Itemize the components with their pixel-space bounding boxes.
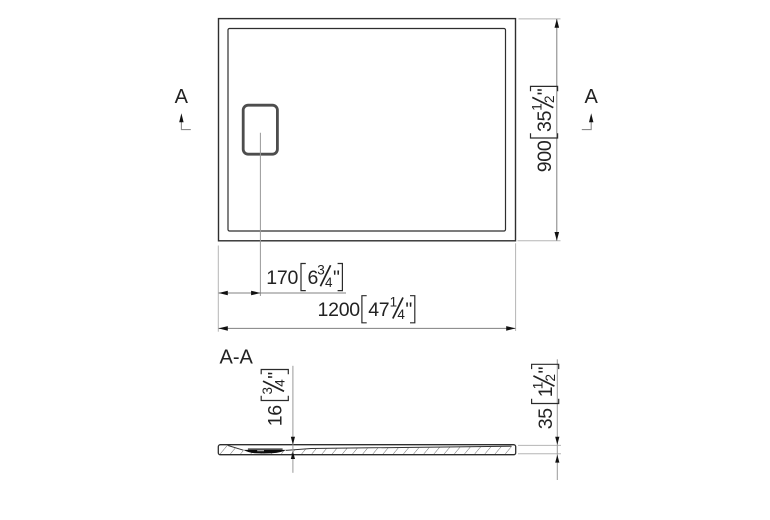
svg-text:4: 4 <box>273 379 288 387</box>
svg-text:": " <box>535 367 557 374</box>
svg-text:170: 170 <box>266 267 298 289</box>
svg-text:": " <box>333 267 340 289</box>
svg-text:35: 35 <box>535 408 557 430</box>
svg-text:2: 2 <box>542 95 557 103</box>
svg-text:4: 4 <box>397 307 405 322</box>
svg-text:4: 4 <box>325 275 333 290</box>
svg-text:3: 3 <box>317 262 325 277</box>
svg-text:": " <box>265 372 287 379</box>
svg-text:": " <box>405 299 412 321</box>
svg-text:A: A <box>585 86 599 108</box>
svg-text:A: A <box>175 86 189 108</box>
svg-text:900: 900 <box>534 140 556 172</box>
svg-text:3: 3 <box>260 387 275 395</box>
svg-text:1200: 1200 <box>318 299 361 321</box>
svg-text:1: 1 <box>390 295 398 310</box>
svg-text:1: 1 <box>529 103 544 111</box>
svg-text:1: 1 <box>530 382 545 390</box>
svg-text:47: 47 <box>368 299 389 321</box>
svg-text:2: 2 <box>543 374 558 382</box>
svg-text:35: 35 <box>534 110 556 132</box>
svg-text:A-A: A-A <box>220 347 254 369</box>
svg-text:": " <box>534 88 556 95</box>
svg-text:16: 16 <box>265 405 287 426</box>
